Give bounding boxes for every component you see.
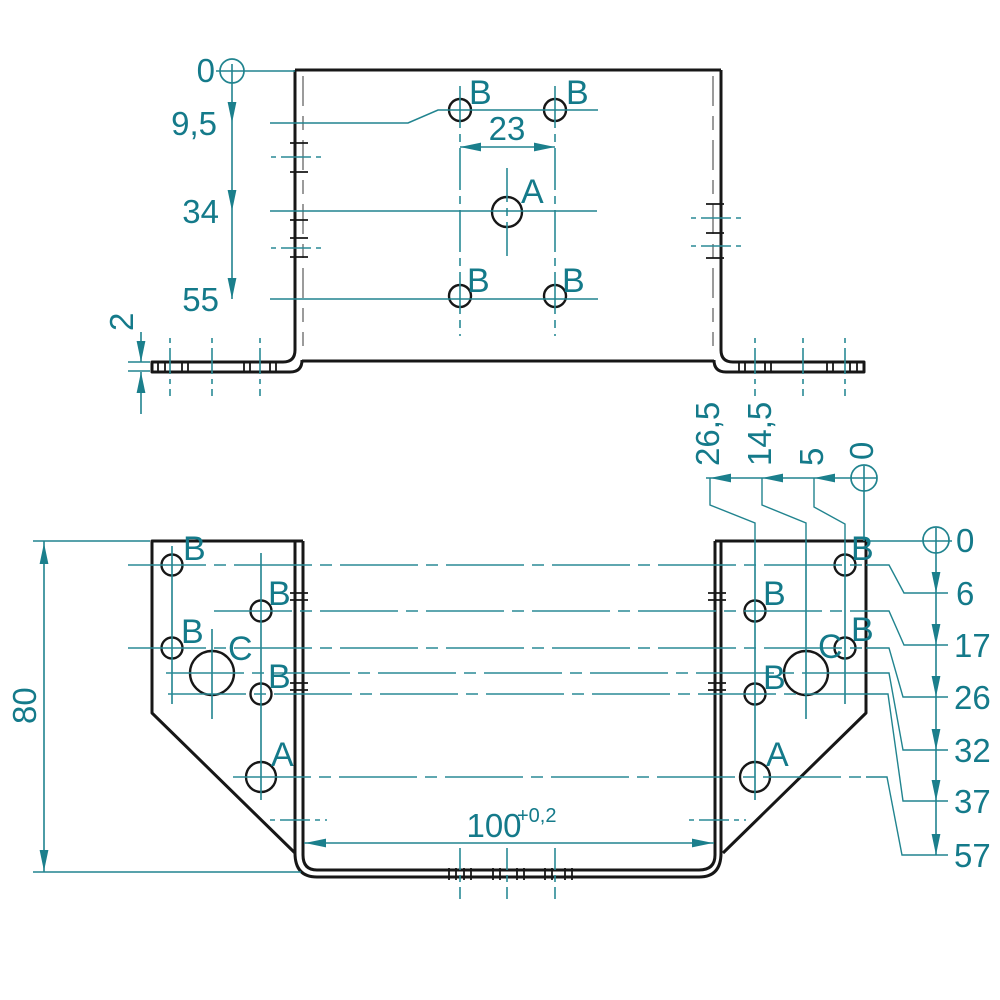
- hole-label-b: B: [183, 530, 206, 568]
- edge-centerline-stub: [271, 157, 325, 248]
- arrowhead: [137, 341, 146, 362]
- arrowhead: [534, 143, 555, 152]
- arrowhead: [305, 839, 326, 848]
- row-line-9-5: [270, 110, 598, 123]
- plan-view: 0 6 17 26 32 37 57 26,5 14,5 5 0 80 100 …: [6, 402, 991, 899]
- hole-label-a: A: [271, 736, 294, 774]
- arrowhead: [692, 839, 713, 848]
- edge-centerline-stub: [691, 218, 745, 246]
- arrowhead: [932, 572, 941, 593]
- hole-label-b: B: [562, 262, 585, 300]
- front-dim-2: 2: [103, 313, 140, 331]
- plan-col-5: 5: [793, 448, 830, 466]
- front-view: 0 9,5 34 55 2 23 B B A B B: [103, 52, 864, 414]
- plan-col-14-5: 14,5: [741, 402, 778, 466]
- plan-col-26-5: 26,5: [689, 402, 726, 466]
- drawing-sheet: 0 9,5 34 55 2 23 B B A B B: [0, 0, 1000, 1000]
- hash-tick: [290, 593, 308, 690]
- top-dim-extension-14-5: [762, 478, 806, 541]
- plan-row-6: 6: [956, 575, 974, 612]
- hole-label-b: B: [851, 611, 874, 649]
- top-dim-extension-26-5: [710, 478, 755, 541]
- front-dim-55: 55: [182, 281, 219, 318]
- web-column-centerline: [460, 848, 555, 899]
- hole-label-b: B: [181, 613, 204, 651]
- hole-label-b: B: [763, 575, 786, 613]
- arrowhead: [460, 143, 481, 152]
- arrowhead: [932, 729, 941, 750]
- plan-col-0: 0: [843, 442, 880, 460]
- hole-label-b: B: [763, 659, 786, 697]
- arrowhead: [932, 780, 941, 801]
- arrowhead: [932, 834, 941, 855]
- front-right-web-and-flange: [714, 70, 864, 372]
- arrowhead: [762, 474, 783, 483]
- hole-label-b: B: [268, 658, 291, 696]
- hole-label-c: C: [818, 628, 843, 666]
- hole-label-b: B: [851, 530, 874, 568]
- plan-row-57: 57: [954, 837, 991, 874]
- arrowhead: [228, 278, 237, 299]
- front-datum-label: 0: [197, 52, 215, 89]
- plan-row-26: 26: [954, 679, 991, 716]
- hole-label-c: C: [228, 630, 253, 668]
- hash-tick: [290, 143, 308, 257]
- plan-row-17: 17: [954, 627, 991, 664]
- arrowhead: [710, 474, 731, 483]
- hole-label-b: B: [566, 74, 589, 112]
- front-flange-ticks: [158, 338, 857, 396]
- front-dim-9-5: 9,5: [171, 105, 217, 142]
- hash-tick: [708, 593, 726, 690]
- hole-label-b: B: [467, 262, 490, 300]
- plan-right-plate: [715, 541, 866, 853]
- plan-row-32: 32: [954, 732, 991, 769]
- arrowhead: [228, 102, 237, 123]
- arrowhead: [228, 190, 237, 211]
- plan-dim-100-tolerance: +0,2: [517, 805, 556, 827]
- front-dim-23: 23: [489, 110, 526, 147]
- top-dim-extension-5: [814, 478, 845, 541]
- flange-hole-centerline: [170, 338, 845, 396]
- hole-label-b: B: [268, 575, 291, 613]
- hole-label-a: A: [766, 736, 789, 774]
- plan-dim-80: 80: [6, 687, 43, 724]
- arrowhead: [137, 372, 146, 393]
- arrowhead: [932, 676, 941, 697]
- arrowhead: [40, 850, 49, 871]
- plan-dim-100: 100: [466, 807, 521, 844]
- arrowhead: [40, 543, 49, 564]
- hole-label-b: B: [469, 74, 492, 112]
- technical-drawing: 0 9,5 34 55 2 23 B B A B B: [0, 0, 1000, 1000]
- front-dim-34: 34: [182, 193, 219, 230]
- hole-label-a: A: [521, 173, 544, 211]
- arrowhead: [932, 624, 941, 645]
- plan-row-0: 0: [956, 522, 974, 559]
- arrowhead: [814, 474, 835, 483]
- plan-row-37: 37: [954, 783, 991, 820]
